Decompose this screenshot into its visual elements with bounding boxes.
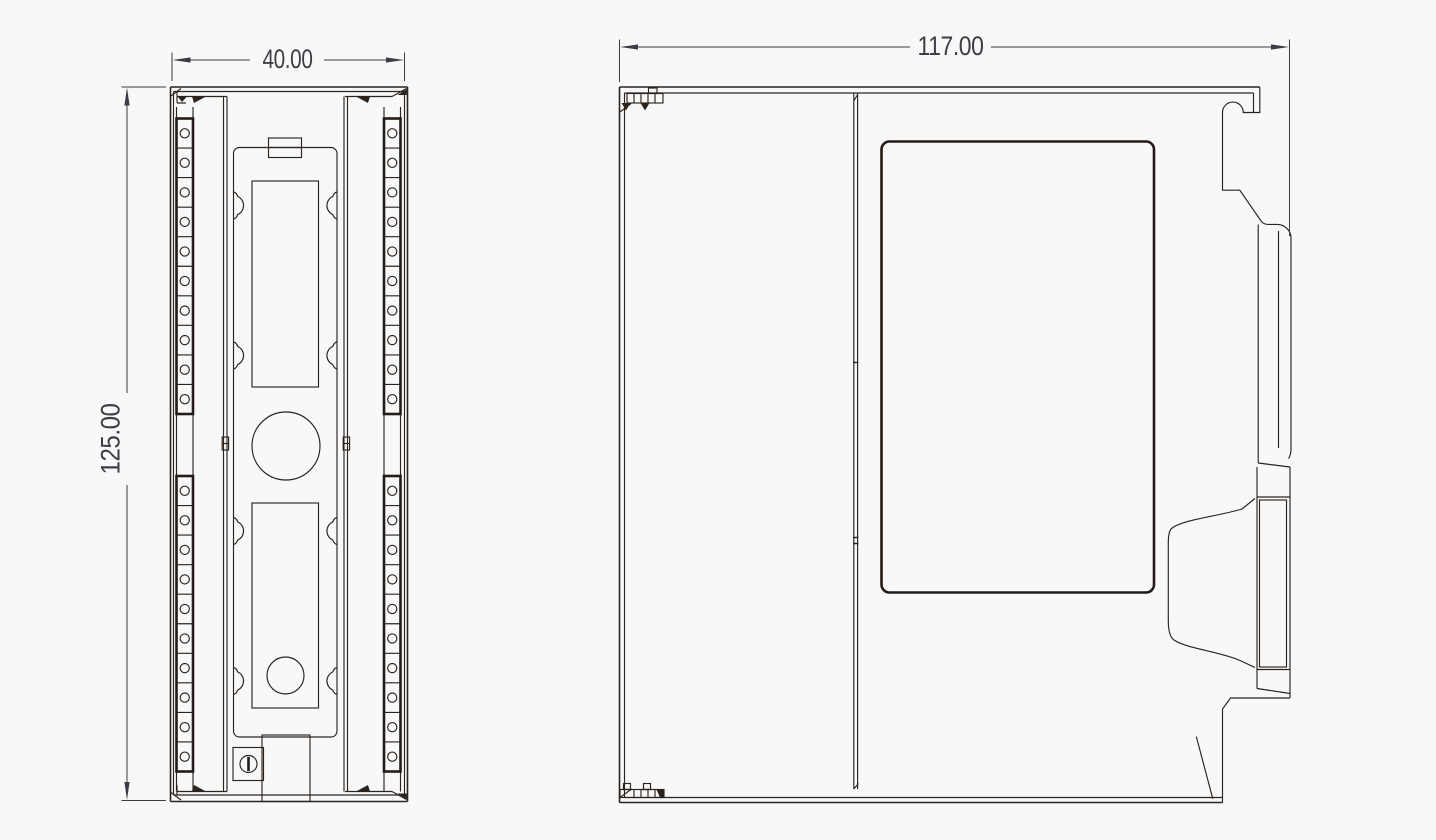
dim-text-side-width: 117.00 [918, 31, 984, 61]
lower-window [252, 503, 319, 708]
front-bottom-corner-details [171, 785, 407, 800]
terminal-strip-left-lower [177, 476, 194, 772]
top-clip-tab [269, 138, 302, 158]
terminal-channel-lines [177, 107, 401, 792]
terminal-strip-left-upper [177, 119, 194, 415]
bottom-tab [262, 735, 310, 802]
front-cover-seam [853, 94, 859, 790]
dimension-front-width: 40.00 [172, 44, 405, 81]
screw-head [233, 748, 264, 781]
dimension-side-width: 117.00 [620, 31, 1290, 236]
front-view [171, 87, 408, 802]
din-rail-latch [1223, 87, 1292, 467]
side-view [620, 87, 1292, 803]
small-circle [267, 657, 304, 694]
terminal-strip-right-lower [384, 476, 401, 772]
side-top-hinge [620, 88, 663, 112]
front-top-corner-details [171, 89, 407, 104]
side-bottom-hinge [620, 784, 664, 798]
terminal-strip-right-upper [384, 119, 401, 415]
dimension-front-height: 125.00 [96, 87, 167, 801]
edge-cutouts [234, 192, 338, 695]
side-housing-outline [620, 87, 1260, 803]
center-circle [252, 412, 320, 480]
dim-text-front-height: 125.00 [96, 404, 126, 475]
upper-window [252, 181, 319, 387]
drawing-sheet: 40.00 125.00 117.00 [0, 0, 1436, 840]
engineering-drawing-canvas: 40.00 125.00 117.00 [0, 0, 1436, 840]
label-plate [882, 142, 1155, 593]
dim-text-front-width: 40.00 [263, 44, 313, 74]
front-center-panel [233, 138, 337, 802]
front-housing-outline [171, 87, 408, 802]
connector-block [1168, 467, 1290, 803]
